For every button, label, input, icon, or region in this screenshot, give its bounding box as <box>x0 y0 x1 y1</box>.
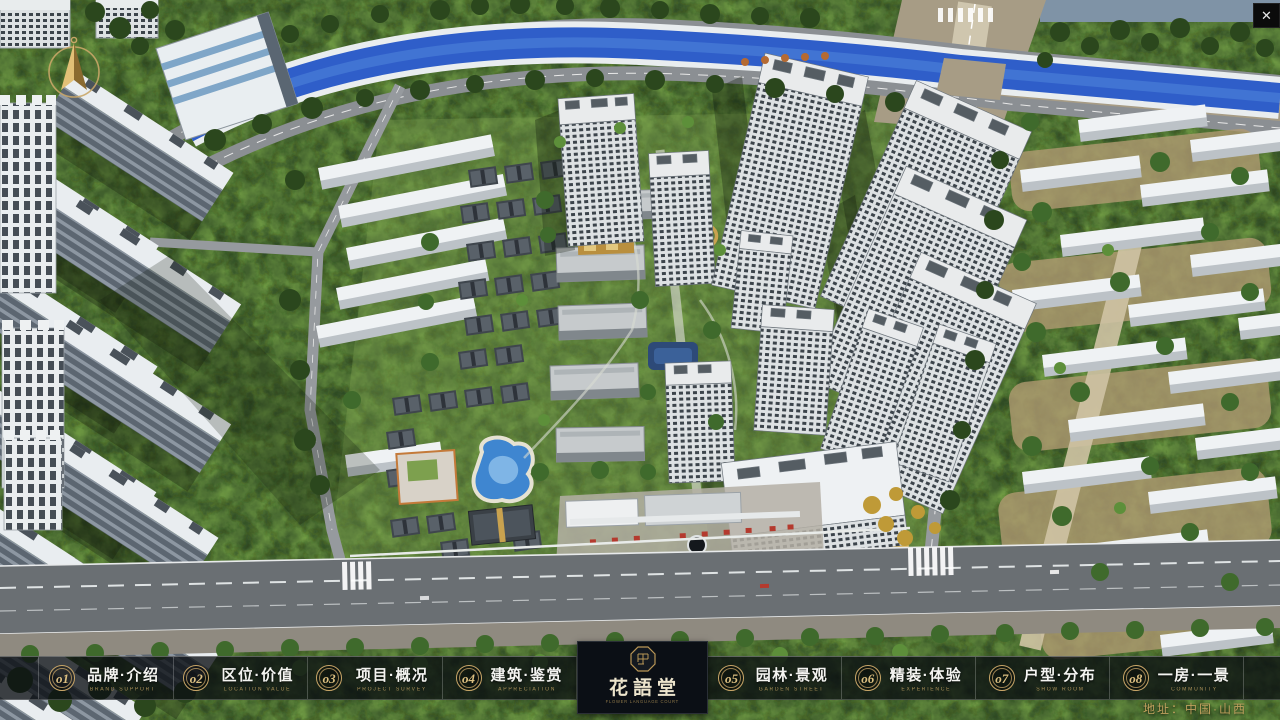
navbar-spacer <box>1244 657 1280 699</box>
nav-number-badge: o3 <box>316 665 342 691</box>
nav-item-label: 园林·景观 <box>756 664 829 685</box>
logo-home-button[interactable]: 花語堂 FLOWER LANGUAGE COURT <box>577 641 708 714</box>
nav-item-sublabel: COMMUNITY <box>1171 687 1218 692</box>
nav-item-sublabel: PROJECT SURVEY <box>357 687 427 692</box>
nav-item-label: 建筑·鉴赏 <box>491 664 564 685</box>
presentation-stage: ✕ o1 品牌·介绍 BRAND SUPPORT o2 区位·价值 LOCATI… <box>0 0 1280 720</box>
nav-item-floorplan-distribution[interactable]: o7 户型·分布 SHOW ROOM <box>976 657 1110 699</box>
nav-number-badge: o5 <box>718 665 744 691</box>
nav-item-sublabel: SHOW ROOM <box>1036 687 1084 692</box>
nav-number-badge: o6 <box>855 665 881 691</box>
nav-item-location-value[interactable]: o2 区位·价值 LOCATION VALUE <box>174 657 309 699</box>
clubhouse-hall <box>468 505 535 546</box>
nav-item-label: 精装·体验 <box>890 664 963 685</box>
logo-subtitle: FLOWER LANGUAGE COURT <box>606 700 679 704</box>
nav-item-sublabel: BRAND SUPPORT <box>90 687 156 692</box>
aerial-masterplan-view <box>0 0 1280 720</box>
nav-item-room-view[interactable]: o8 一房·一景 COMMUNITY <box>1110 657 1244 699</box>
nav-item-label: 区位·价值 <box>222 664 295 685</box>
nav-item-label: 项目·概况 <box>356 664 429 685</box>
nav-item-project-overview[interactable]: o3 项目·概况 PROJECT SURVEY <box>308 657 443 699</box>
kindergarten <box>396 450 457 504</box>
nav-item-sublabel: APPRECIATION <box>498 687 556 692</box>
nav-item-interior-experience[interactable]: o6 精装·体验 EXPERIENCE <box>842 657 976 699</box>
nav-number-badge: o2 <box>183 665 209 691</box>
nav-item-sublabel: LOCATION VALUE <box>224 687 291 692</box>
logo-title: 花語堂 <box>604 673 681 700</box>
nav-number-badge: o4 <box>456 665 482 691</box>
address-label: 地址：中国·山西 <box>1143 700 1247 717</box>
navbar-spacer <box>0 657 39 699</box>
nav-number-badge: o8 <box>1123 665 1149 691</box>
nav-item-brand-intro[interactable]: o1 品牌·介绍 BRAND SUPPORT <box>39 657 174 699</box>
nav-item-sublabel: EXPERIENCE <box>901 687 951 692</box>
nav-number-badge: o1 <box>49 665 75 691</box>
nav-item-label: 一房·一景 <box>1158 664 1231 685</box>
nav-item-label: 品牌·介绍 <box>87 664 160 685</box>
landscape-pool <box>474 438 533 502</box>
seal-icon <box>630 646 656 672</box>
nav-item-sublabel: GARDEN STREET <box>759 687 824 692</box>
nav-item-architecture[interactable]: o4 建筑·鉴赏 APPRECIATION <box>443 657 578 699</box>
nav-item-garden-landscape[interactable]: o5 园林·景观 GARDEN STREET <box>708 657 842 699</box>
close-button[interactable]: ✕ <box>1253 3 1280 28</box>
nav-number-badge: o7 <box>989 665 1015 691</box>
compass-icon <box>42 26 106 106</box>
nav-item-label: 户型·分布 <box>1024 664 1097 685</box>
